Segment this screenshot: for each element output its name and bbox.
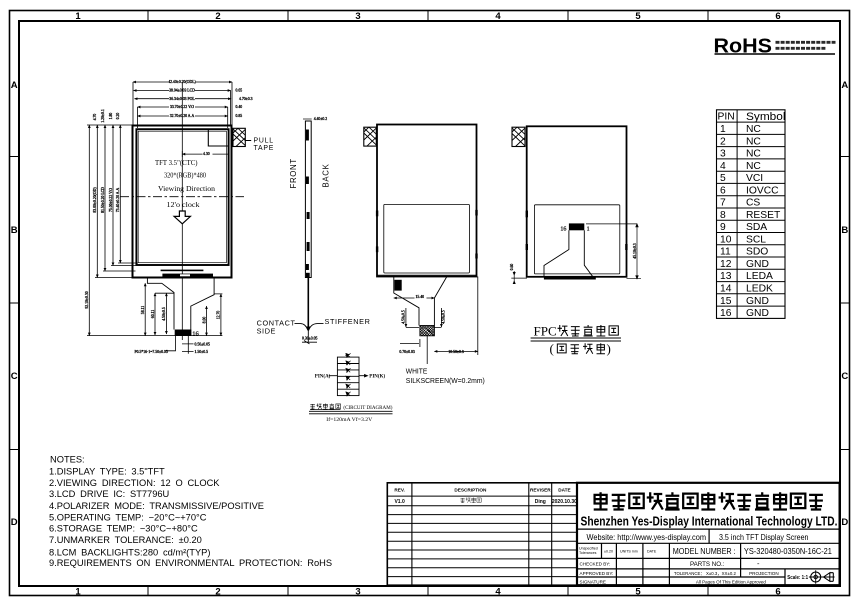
svg-text:4: 4	[495, 587, 501, 598]
svg-text:7.UNMARKER TOLERANCE: ±0.20: 7.UNMARKER TOLERANCE: ±0.20	[49, 535, 202, 545]
svg-text:GND: GND	[746, 259, 769, 270]
svg-text:STIFFENER: STIFFENER	[325, 317, 371, 326]
svg-text:5.OPERATING TEMP: −20°C~+70°C: 5.OPERATING TEMP: −20°C~+70°C	[49, 512, 207, 522]
svg-text:5: 5	[635, 11, 641, 22]
svg-text:SDO: SDO	[746, 247, 768, 258]
svg-text:Symbol: Symbol	[746, 111, 786, 123]
svg-text:NC: NC	[746, 149, 761, 160]
svg-text:PARTS NO.:: PARTS NO.:	[690, 561, 725, 568]
svg-text:NOTES:: NOTES:	[50, 455, 85, 465]
svg-text:2: 2	[215, 587, 220, 598]
svg-text:3.LCD DRIVE IC: ST7796U: 3.LCD DRIVE IC: ST7796U	[49, 489, 169, 499]
svg-text:3: 3	[355, 11, 360, 22]
svg-text:0.30±0.05: 0.30±0.05	[302, 337, 317, 341]
svg-text:3: 3	[355, 587, 360, 598]
svg-text:): )	[607, 341, 611, 356]
svg-text:If=120mA Vf=3.2V: If=120mA Vf=3.2V	[326, 416, 372, 423]
svg-text:5: 5	[635, 587, 641, 598]
svg-text:YS-320480-0350N-16C-21: YS-320480-0350N-16C-21	[744, 547, 832, 556]
svg-text:PULL: PULL	[254, 137, 274, 144]
svg-text:Viewing Direction: Viewing Direction	[158, 185, 216, 193]
svg-text:Website: http://www.yes-displa: Website: http://www.yes-display.com	[587, 532, 707, 542]
svg-text:RESET: RESET	[746, 210, 781, 221]
svg-text:0.50±0.05: 0.50±0.05	[195, 342, 210, 346]
svg-text:B: B	[11, 225, 18, 236]
svg-text:Shenzhen Yes-Display Internati: Shenzhen Yes-Display International Techn…	[581, 515, 838, 529]
svg-text:4.50±0.5: 4.50±0.5	[402, 310, 406, 324]
svg-text:(CIRCUIT DIAGRAM): (CIRCUIT DIAGRAM)	[343, 404, 392, 411]
svg-text:9.REQUIREMENTS ON ENVIRONMENTA: 9.REQUIREMENTS ON ENVIRONMENTAL PROTECTI…	[49, 558, 332, 568]
svg-text:1: 1	[720, 124, 726, 135]
svg-text:9: 9	[720, 222, 726, 233]
svg-text:PIN(K): PIN(K)	[369, 375, 385, 380]
svg-text:8.00: 8.00	[202, 317, 206, 324]
svg-text:SILKSCREEN(W=0.2mm): SILKSCREEN(W=0.2mm)	[406, 376, 485, 385]
svg-text:16: 16	[560, 227, 566, 233]
svg-text:SIDE: SIDE	[257, 327, 276, 336]
svg-text:TAPE: TAPE	[254, 145, 275, 152]
svg-text:D: D	[11, 517, 18, 528]
svg-text:SIGNATURE: SIGNATURE	[580, 580, 606, 585]
svg-text:VCI: VCI	[746, 173, 763, 184]
svg-text:C: C	[841, 371, 848, 382]
svg-text:4.50±0.5: 4.50±0.5	[441, 310, 445, 324]
svg-text:83.00±0.20(OD): 83.00±0.20(OD)	[93, 187, 97, 213]
svg-text:±0.20: ±0.20	[604, 550, 613, 554]
svg-text:LEDA: LEDA	[746, 271, 773, 282]
svg-text:1.80: 1.80	[109, 113, 113, 120]
svg-text:3.5 inch TFT Display Screen: 3.5 inch TFT Display Screen	[719, 532, 809, 542]
svg-text:13: 13	[720, 271, 732, 282]
svg-text:CS: CS	[746, 198, 760, 209]
svg-text:15: 15	[720, 296, 732, 307]
svg-text:MODEL NUMBER :: MODEL NUMBER :	[673, 547, 736, 556]
svg-text:B: B	[841, 225, 848, 236]
svg-text:All Pages Of This Edition Appr: All Pages Of This Edition Approved	[696, 580, 766, 585]
svg-text:6: 6	[775, 587, 780, 598]
svg-text:0.60: 0.60	[510, 264, 514, 271]
svg-text:73.40±0.20 A.A: 73.40±0.20 A.A	[116, 188, 120, 213]
svg-text:(: (	[550, 341, 554, 356]
svg-text:Unspecified: Unspecified	[579, 547, 598, 551]
svg-text:1: 1	[587, 227, 590, 233]
svg-text:DATE: DATE	[647, 550, 657, 554]
svg-text:4.70±0.3: 4.70±0.3	[239, 97, 253, 101]
svg-text:10.50±0.3: 10.50±0.3	[448, 350, 463, 354]
svg-text:0.40: 0.40	[236, 105, 243, 109]
svg-text:92.10±0.30: 92.10±0.30	[85, 291, 89, 308]
svg-text:16: 16	[192, 331, 199, 338]
svg-text:8.LCM BACKLIGHTS:280 cd/m²(TYP: 8.LCM BACKLIGHTS:280 cd/m²(TYP)	[49, 547, 210, 557]
svg-text:A: A	[11, 80, 18, 91]
svg-text:Tolerances: Tolerances	[579, 551, 597, 555]
svg-text:P0.5*16-1=7.50±0.05: P0.5*16-1=7.50±0.05	[135, 350, 168, 354]
svg-text:Scale: 1:1: Scale: 1:1	[787, 575, 808, 581]
svg-text:NC: NC	[746, 136, 761, 147]
svg-text:2.VIEWING DIRECTION: 12 O CLOC: 2.VIEWING DIRECTION: 12 O CLOCK	[49, 478, 220, 488]
svg-text:12.70: 12.70	[217, 311, 221, 320]
svg-text:1.50±0.5: 1.50±0.5	[195, 350, 209, 354]
svg-text:BACK: BACK	[322, 163, 331, 187]
svg-text:4.70: 4.70	[93, 114, 97, 121]
svg-text:4.POLARIZER MODE: TRANSMISSIVE: 4.POLARIZER MODE: TRANSMISSIVE/POSITIVE	[49, 501, 264, 511]
svg-text:4.30: 4.30	[203, 152, 210, 156]
svg-text:D: D	[841, 517, 848, 528]
svg-text:5: 5	[720, 173, 726, 184]
svg-text:6: 6	[775, 11, 780, 22]
svg-text:16: 16	[720, 308, 732, 319]
svg-text:REVISER: REVISER	[530, 488, 551, 493]
svg-text:PROJECTION: PROJECTION	[749, 571, 779, 576]
svg-text:NC: NC	[746, 161, 761, 172]
svg-text:SDA: SDA	[746, 222, 767, 233]
svg-text:WHITE: WHITE	[406, 367, 428, 376]
svg-text:0.65: 0.65	[236, 89, 243, 93]
svg-text:12: 12	[720, 259, 732, 270]
svg-text:LEDK: LEDK	[746, 284, 773, 295]
svg-text:60.11: 60.11	[151, 310, 155, 319]
svg-text:14: 14	[720, 284, 732, 295]
svg-text:PIN(A): PIN(A)	[315, 375, 331, 380]
svg-text:GND: GND	[746, 296, 769, 307]
svg-text:UNITS mm: UNITS mm	[620, 550, 638, 554]
svg-text:10: 10	[720, 234, 732, 245]
svg-text:6.STORAGE TEMP: −30°C~+80°C: 6.STORAGE TEMP: −30°C~+80°C	[49, 524, 198, 534]
svg-text:0.85: 0.85	[236, 114, 243, 118]
svg-text:11: 11	[720, 247, 731, 258]
svg-text:45.10±0.3: 45.10±0.3	[633, 243, 637, 258]
svg-text:C: C	[11, 371, 18, 382]
svg-text:15.40: 15.40	[416, 295, 425, 299]
svg-text:GND: GND	[746, 308, 769, 319]
svg-text:CHECKED BY:: CHECKED BY:	[580, 562, 611, 567]
svg-text:4: 4	[720, 161, 726, 172]
svg-text:Ding: Ding	[535, 499, 546, 505]
svg-text:320*(RGB)*480: 320*(RGB)*480	[164, 172, 206, 180]
svg-text:FPC: FPC	[534, 324, 557, 339]
svg-text:6: 6	[720, 185, 726, 196]
svg-text:V1.0: V1.0	[394, 499, 405, 505]
svg-text:75.00±0.22 V.O: 75.00±0.22 V.O	[109, 188, 113, 212]
svg-text:DATE: DATE	[558, 488, 570, 493]
svg-text:REV.: REV.	[394, 488, 405, 493]
svg-text:4: 4	[495, 11, 501, 22]
svg-text:0.70±0.03: 0.70±0.03	[399, 350, 414, 354]
svg-text:1: 1	[75, 587, 81, 598]
svg-text:DESCRIPTION: DESCRIPTION	[454, 488, 487, 493]
svg-text:1.20±0.1: 1.20±0.1	[101, 109, 105, 123]
svg-text:7: 7	[720, 198, 726, 209]
svg-text:2: 2	[720, 136, 726, 147]
svg-text:SCL: SCL	[746, 234, 766, 245]
svg-text:2020.10.30: 2020.10.30	[552, 499, 577, 505]
svg-text:1: 1	[75, 11, 81, 22]
svg-text:IOVCC: IOVCC	[746, 185, 779, 196]
svg-text:1.DISPLAY TYPE: 3.5"TFT: 1.DISPLAY TYPE: 3.5"TFT	[49, 466, 165, 476]
svg-text:TFT 3.5"(CTC): TFT 3.5"(CTC)	[155, 159, 198, 167]
svg-text:APPROVED BY:: APPROVED BY:	[580, 571, 614, 576]
svg-text:3: 3	[720, 149, 726, 160]
svg-text:81.50±0.20 LCD: 81.50±0.20 LCD	[101, 187, 105, 213]
svg-text:58.11: 58.11	[141, 306, 145, 315]
svg-text:NC: NC	[746, 124, 761, 135]
svg-text:12'o clock: 12'o clock	[167, 201, 201, 209]
svg-text:8: 8	[720, 210, 726, 221]
svg-text:A: A	[841, 80, 848, 91]
svg-text:PIN: PIN	[718, 112, 735, 123]
svg-text:0.20: 0.20	[116, 113, 120, 120]
svg-text:2: 2	[215, 11, 220, 22]
svg-text:4.40±0.2: 4.40±0.2	[314, 117, 328, 121]
svg-text:4.50±0.5: 4.50±0.5	[162, 307, 166, 321]
svg-text:FRONT: FRONT	[289, 158, 298, 188]
